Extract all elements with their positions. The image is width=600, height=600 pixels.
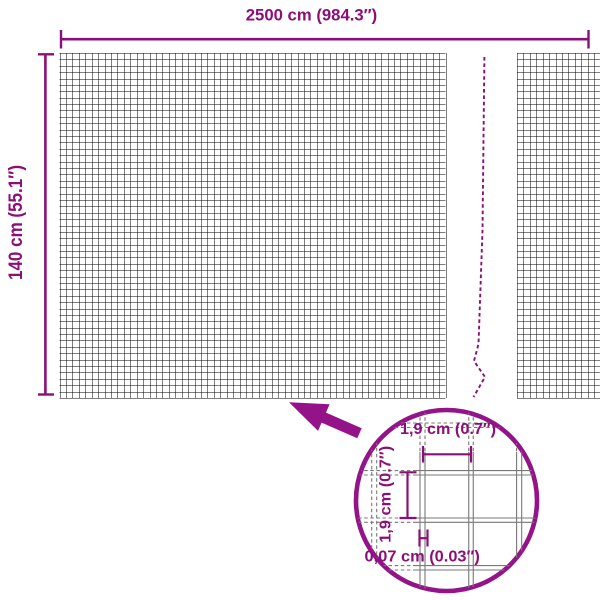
svg-text:1,9 cm (0.7″): 1,9 cm (0.7″) — [400, 421, 496, 438]
svg-text:1,9 cm (0.7″): 1,9 cm (0.7″) — [378, 446, 395, 543]
svg-text:2500 cm (984.3″): 2500 cm (984.3″) — [246, 6, 378, 25]
svg-text:0,07 cm (0.03″): 0,07 cm (0.03″) — [365, 549, 480, 566]
svg-text:140 cm (55.1″): 140 cm (55.1″) — [6, 165, 27, 280]
